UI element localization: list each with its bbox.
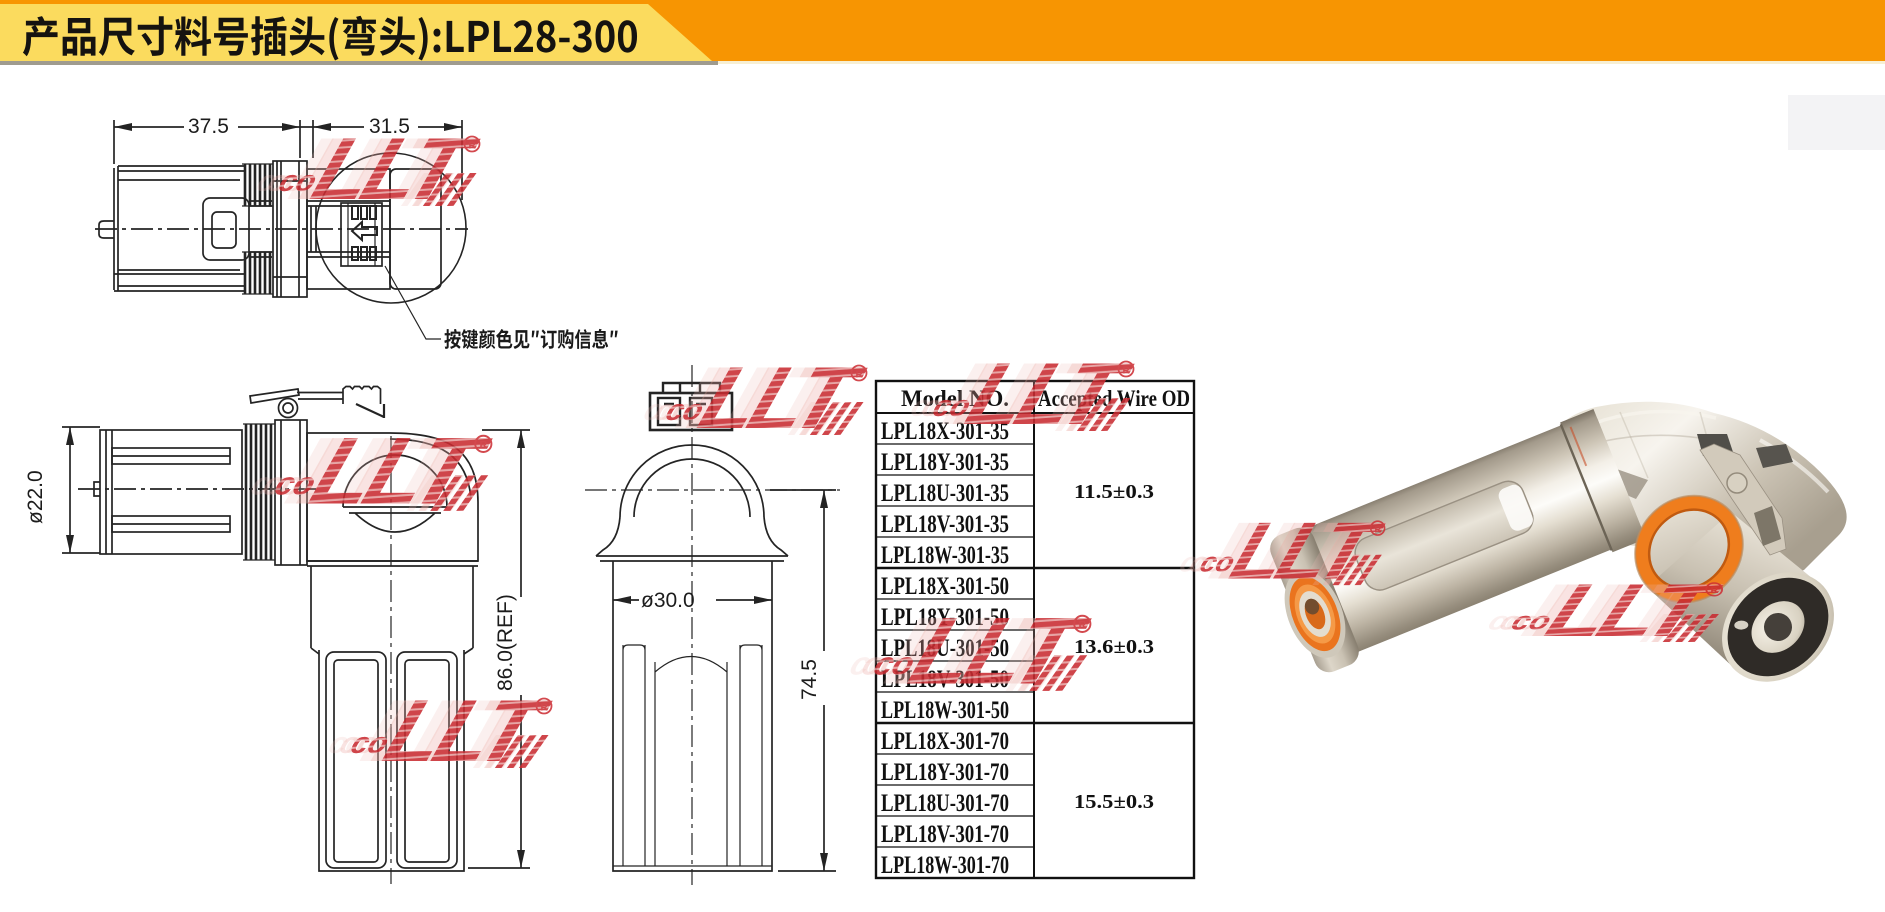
svg-text:ø30.0: ø30.0 (641, 589, 695, 612)
svg-text:13.6±0.3: 13.6±0.3 (1074, 636, 1154, 658)
svg-text:15.5±0.3: 15.5±0.3 (1074, 791, 1154, 813)
svg-text:LPL18X-301-70: LPL18X-301-70 (881, 728, 1009, 755)
svg-text:LPL18V-301-35: LPL18V-301-35 (881, 511, 1009, 538)
svg-text:ø22.0: ø22.0 (24, 470, 47, 524)
svg-text:74.5: 74.5 (798, 659, 821, 700)
svg-text:11.5±0.3: 11.5±0.3 (1074, 481, 1154, 503)
svg-text:LPL18W-301-70: LPL18W-301-70 (881, 852, 1009, 879)
svg-text:LPL18W-301-35: LPL18W-301-35 (881, 542, 1009, 569)
svg-text:LPL18U-301-35: LPL18U-301-35 (881, 480, 1009, 507)
svg-text:LPL18Y-301-70: LPL18Y-301-70 (881, 759, 1009, 786)
svg-text:LPL18Y-301-35: LPL18Y-301-35 (881, 449, 1009, 476)
svg-text:LPL18U-301-70: LPL18U-301-70 (881, 790, 1009, 817)
svg-text:LPL18V-301-70: LPL18V-301-70 (881, 821, 1009, 848)
svg-text:37.5: 37.5 (188, 115, 229, 138)
svg-text:LPL18X-301-50: LPL18X-301-50 (881, 573, 1009, 600)
svg-text:86.0(REF): 86.0(REF) (494, 594, 517, 691)
